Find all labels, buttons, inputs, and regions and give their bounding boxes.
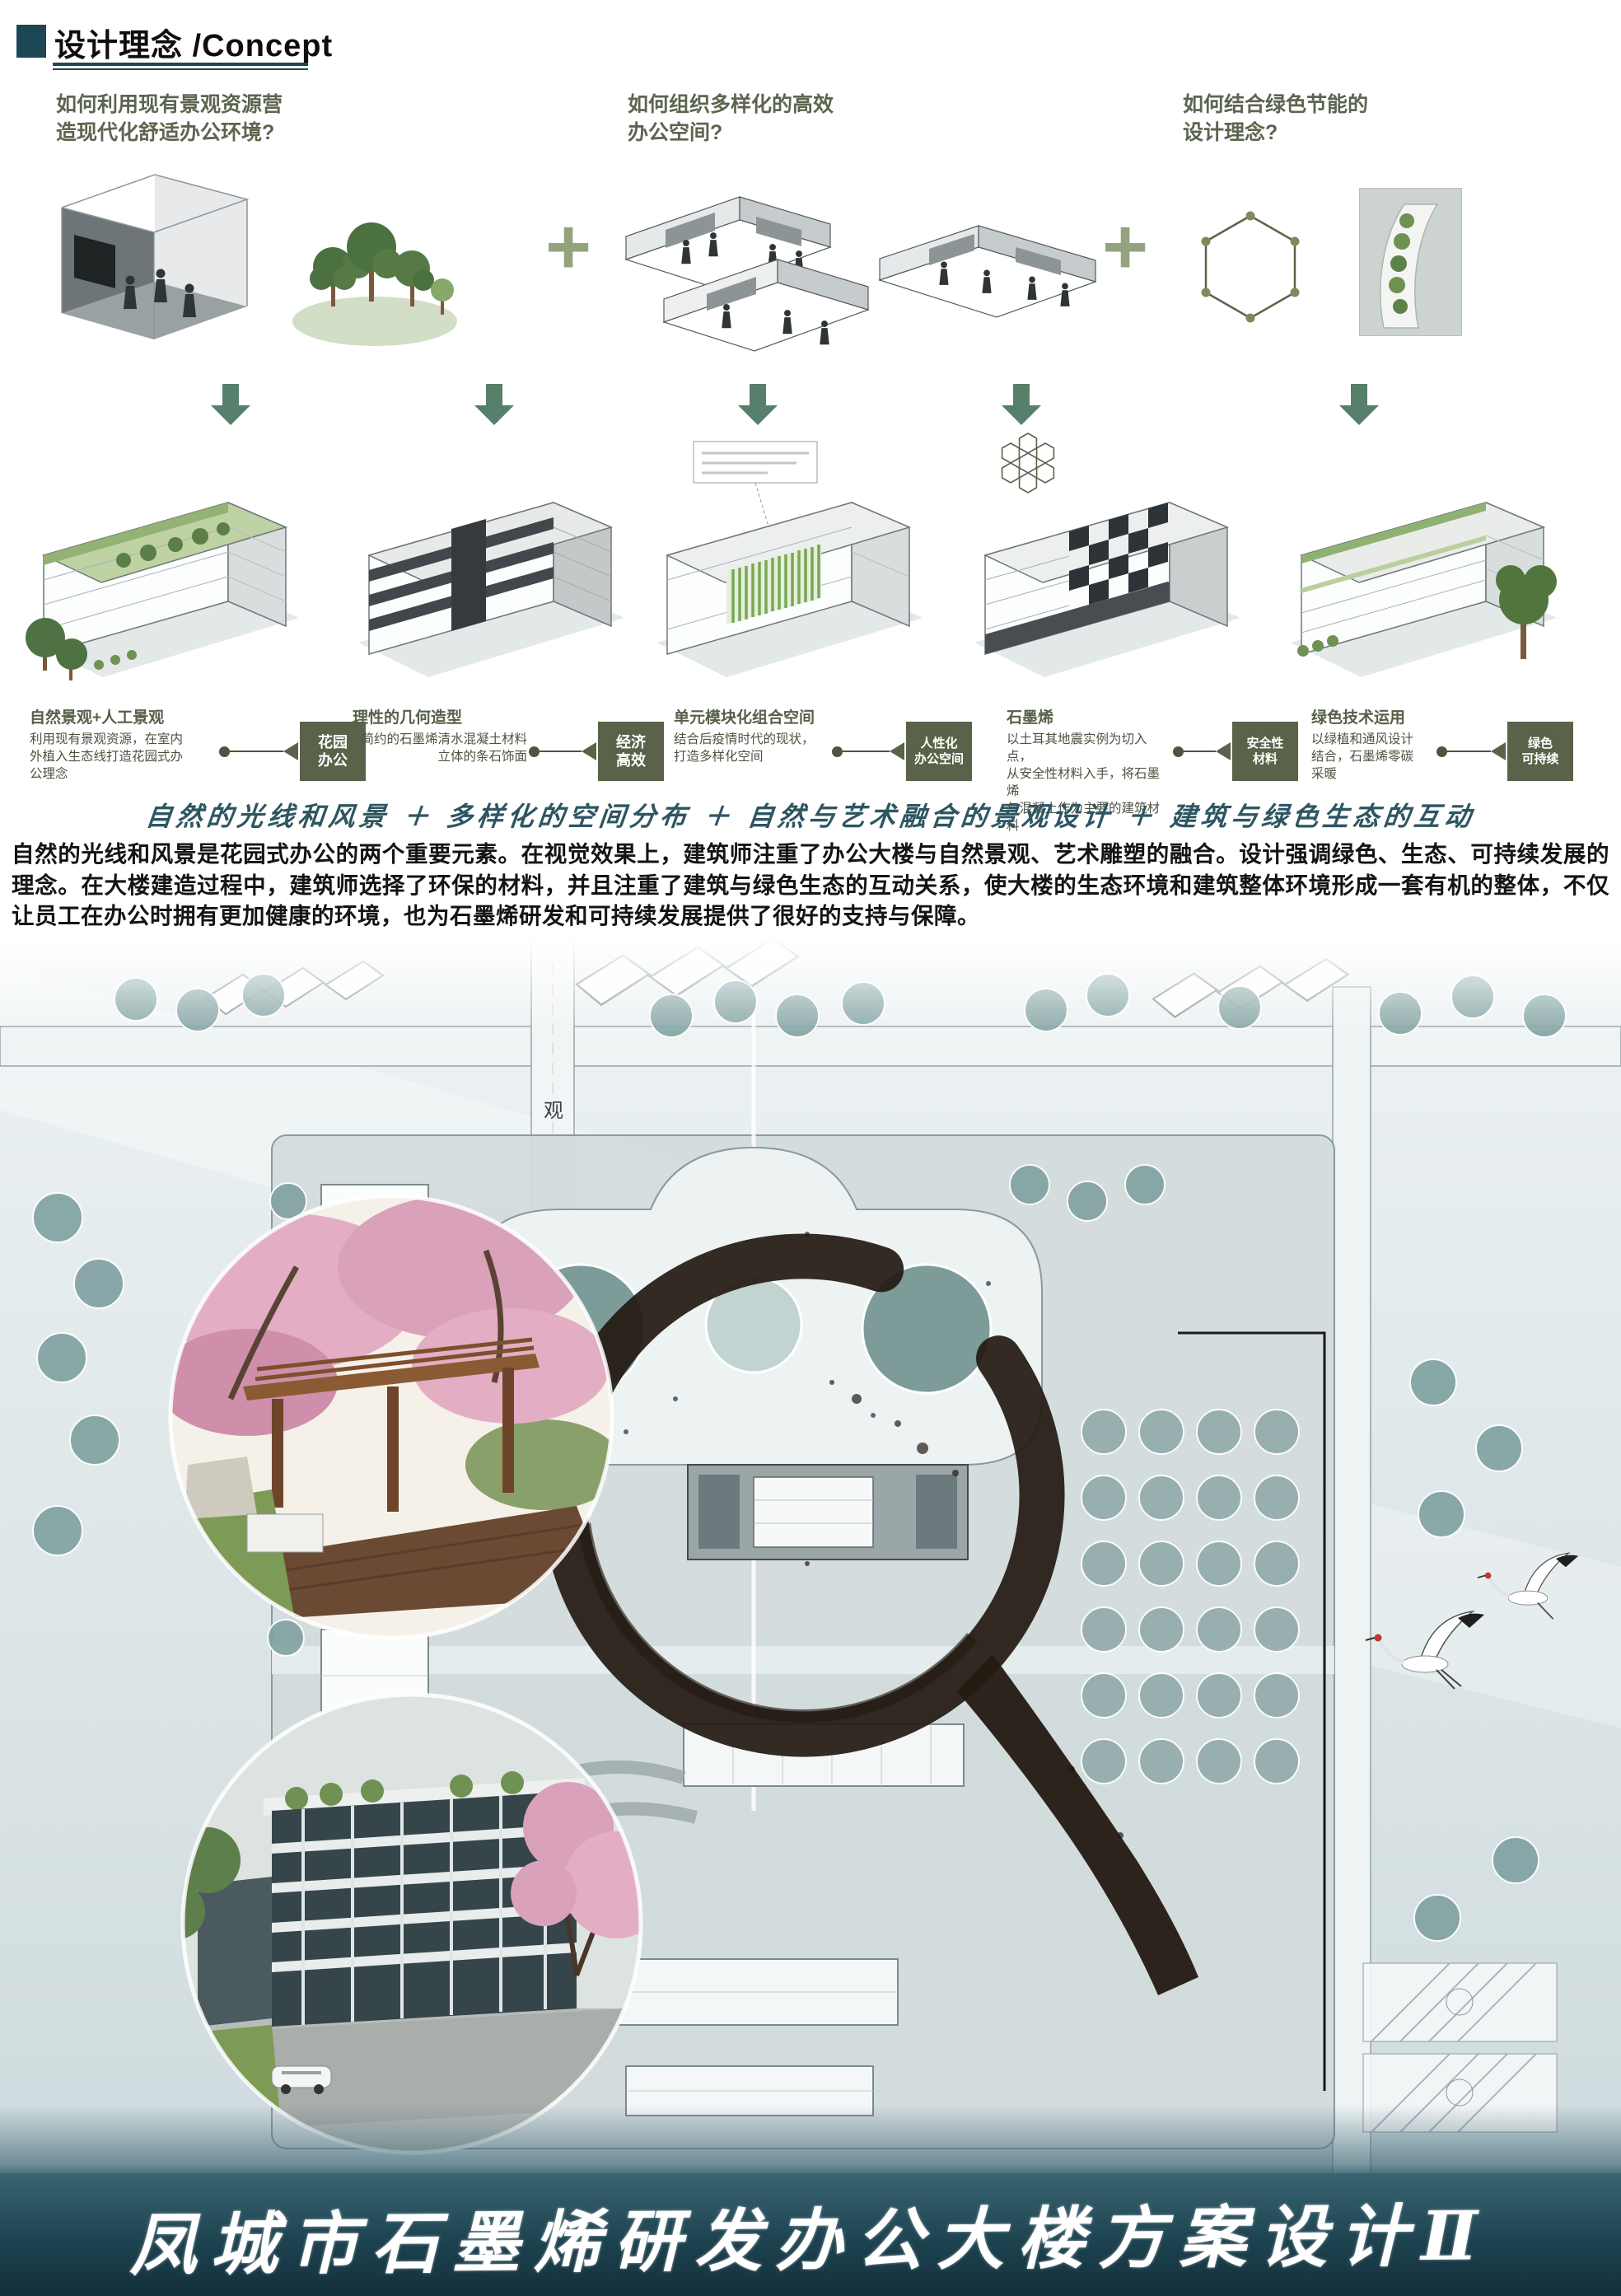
- connector-line: [1436, 742, 1506, 760]
- down-arrow-icon: [474, 384, 514, 425]
- connector-line: [1173, 742, 1231, 760]
- connector-line: [832, 742, 904, 760]
- header-accent-square: [16, 25, 46, 58]
- connector-dot-icon: [1436, 746, 1447, 757]
- strategy-badge: 安全性 材料: [1232, 722, 1298, 781]
- down-arrow-icon: [1002, 384, 1041, 425]
- down-arrow-icon: [738, 384, 778, 425]
- strategy-title: 绿色技术运用: [1311, 705, 1435, 727]
- building-iso-checkerboard: [962, 430, 1246, 706]
- connector-arrow-icon: [283, 742, 298, 760]
- road-label: 观: [544, 1100, 563, 1122]
- connector-line: [529, 742, 596, 760]
- connector-dot-icon: [219, 746, 230, 757]
- strategy-desc: 利用现有景观资源，在室内 外植入生态线打造花园式办 公理念: [30, 731, 217, 783]
- concept-green-facade-photo: [1359, 188, 1462, 336]
- strategy-economic-efficient: 理性的几何造型 简约的石墨烯清水混凝土材料 立体的条石饰面 经济 高效: [353, 705, 664, 797]
- concept-glass-box-diagram: [49, 157, 259, 375]
- connector-dot-icon: [1173, 746, 1184, 757]
- strategy-garden-office: 自然景观+人工景观 利用现有景观资源，在室内 外植入生态线打造花园式办 公理念 …: [30, 705, 366, 797]
- connector-line: [219, 742, 298, 760]
- question-2: 如何组织多样化的高效 办公空间?: [628, 91, 834, 147]
- project-title: 凤城市石墨烯研发办公大楼方案设计Ⅱ: [129, 2181, 1492, 2289]
- calligraphy-slogan: 自然的光线和风景 ＋ 多样化的空间分布 ＋ 自然与艺术融合的景观设计 ＋ 建筑与…: [31, 796, 1591, 834]
- question-3: 如何结合绿色节能的 设计理念?: [1183, 91, 1368, 147]
- down-arrow-icon: [1339, 384, 1379, 425]
- strategy-badge: 人性化 办公空间: [906, 722, 972, 781]
- strategy-title: 自然景观+人工景观: [30, 705, 217, 727]
- page-title: 设计理念 /Concept: [54, 20, 333, 65]
- building-iso-green-sustainable: [1278, 430, 1600, 706]
- question-1: 如何利用现有景观资源营 造现代化舒适办公环境?: [56, 91, 283, 147]
- down-arrow-icon: [211, 384, 250, 425]
- concept-paragraph: 自然的光线和风景是花园式办公的两个重要元素。在视觉效果上，建筑师注重了办公大楼与…: [12, 839, 1609, 932]
- strategy-badge: 经济 高效: [598, 722, 664, 781]
- strategy-green-sustainable: 绿色技术运用 以绿植和通风设计 结合，石墨烯零碳 采暖 绿色 可持续: [1311, 705, 1573, 797]
- strategy-desc: 以绿植和通风设计 结合，石墨烯零碳 采暖: [1311, 731, 1435, 783]
- site-plan: 观: [0, 938, 1621, 2190]
- strategy-desc: 简约的石墨烯清水混凝土材料 立体的条石饰面: [353, 731, 527, 765]
- strategy-safe-material: 石墨烯 以土耳其地震实例为切入点， 从安全性材料入手，将石墨烯 与混凝土作为主要…: [1007, 705, 1298, 797]
- connector-arrow-icon: [890, 742, 904, 760]
- strategy-desc: 结合后疫情时代的现状， 打造多样化空间: [674, 731, 830, 765]
- plus-icon: +: [1102, 208, 1148, 287]
- concept-hexagon-diagram: [1189, 208, 1312, 331]
- plus-icon: +: [545, 208, 591, 287]
- main-office-building: [688, 1465, 968, 1560]
- header-underline: [53, 63, 308, 70]
- concept-trees-diagram: [288, 196, 465, 353]
- connector-arrow-icon: [1216, 742, 1231, 760]
- plan-footer-fade: [0, 2105, 1621, 2179]
- strategy-title: 石墨烯: [1007, 705, 1171, 727]
- connector-arrow-icon: [1491, 742, 1506, 760]
- building-iso-green-louvers: [644, 430, 928, 706]
- connector-dot-icon: [529, 746, 540, 757]
- connector-dot-icon: [832, 746, 843, 757]
- concept-office-modules-diagram-1: [616, 167, 884, 365]
- strategy-title: 理性的几何造型: [353, 705, 527, 727]
- strategy-title: 单元模块化组合空间: [674, 705, 830, 727]
- footer-band: 凤城市石墨烯研发办公大楼方案设计Ⅱ: [0, 2173, 1621, 2296]
- connector-arrow-icon: [582, 742, 596, 760]
- strategy-badge: 绿色 可持续: [1507, 722, 1573, 781]
- building-iso-banded-facade: [346, 430, 630, 706]
- building-iso-garden-office: [21, 430, 317, 706]
- strategy-humanized-office: 单元模块化组合空间 结合后疫情时代的现状， 打造多样化空间 人性化 办公空间: [674, 705, 972, 797]
- concept-office-modules-diagram-2: [871, 208, 1110, 360]
